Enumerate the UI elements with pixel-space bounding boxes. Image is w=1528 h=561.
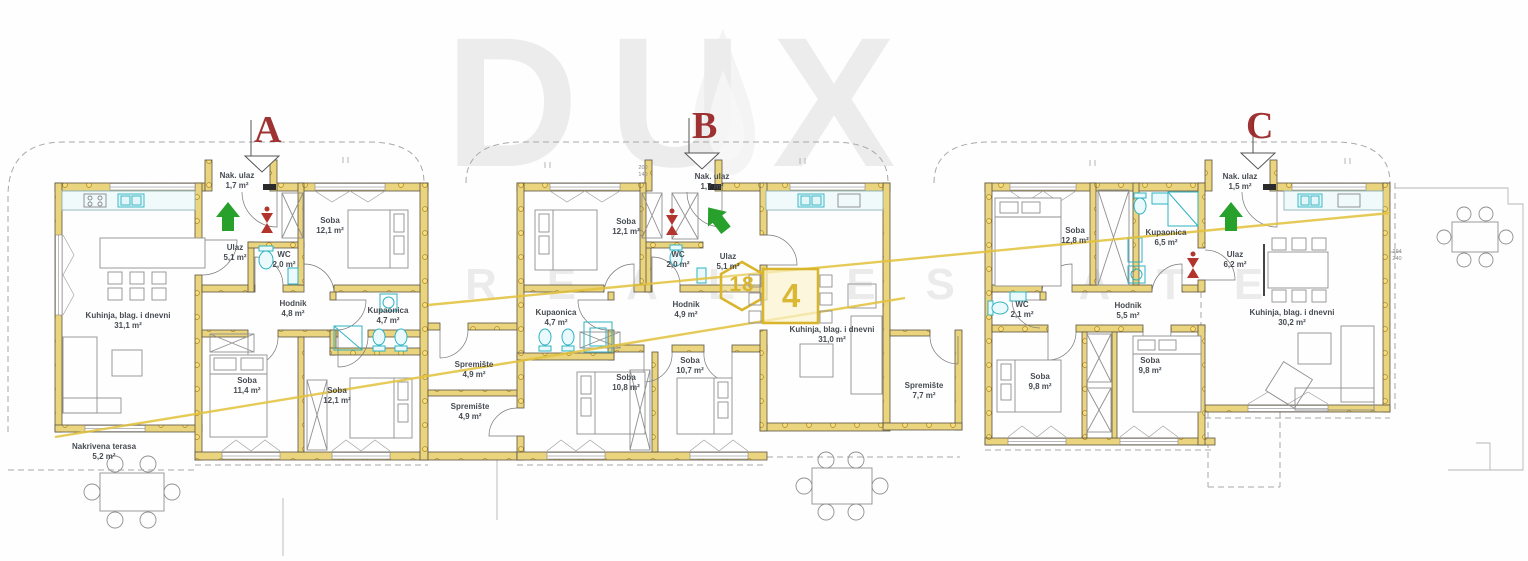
section-marker-c: C (1246, 104, 1273, 148)
storage-annex-walls (428, 323, 523, 460)
site-boundary-lines (283, 188, 1523, 556)
furniture (62, 190, 1513, 528)
floor-plan-drawing (0, 0, 1528, 561)
kitchen-counter (62, 191, 1383, 210)
hexagon-badge-number: 18 (729, 273, 754, 297)
section-marker-a: A (254, 108, 281, 152)
section-marker-triangles (245, 118, 1275, 172)
table-badge-number: 4 (782, 277, 800, 315)
bed (210, 198, 1201, 438)
section-marker-b: B (692, 104, 717, 148)
floor-plan-canvas: DUX REAL ESTATE (0, 0, 1528, 561)
